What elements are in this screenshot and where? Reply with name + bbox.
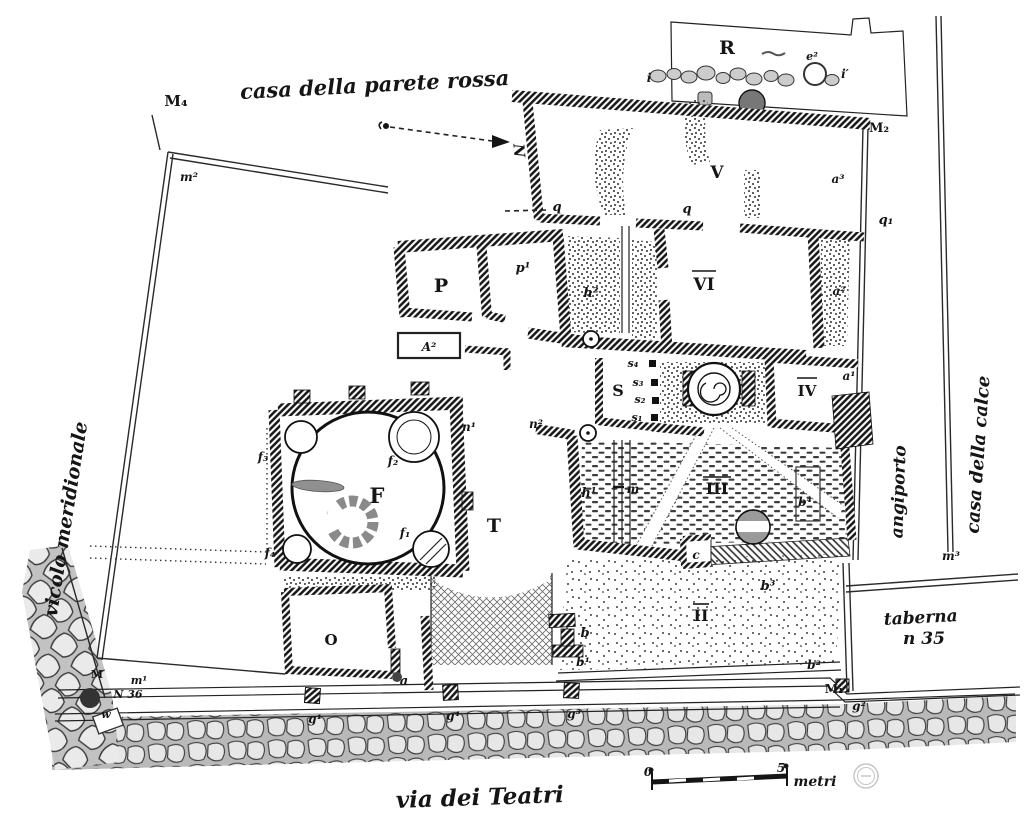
street-vicolo-meridionale: vicolo meridionale (40, 420, 93, 618)
marker-w: w (101, 708, 111, 721)
label-a2: a² (832, 284, 845, 298)
label-casa-della-calce: casa della calce (963, 375, 995, 534)
label-n1: n¹ (462, 420, 476, 434)
label-q-left: q (552, 200, 561, 215)
label-g3: g³ (567, 707, 581, 721)
label-b: b (580, 626, 589, 641)
marker-M2: M₂ (869, 121, 889, 136)
label-h2: h² (583, 286, 598, 301)
label-i: i (647, 71, 652, 85)
label-c: c (692, 548, 700, 562)
scale-zero: 0 (644, 765, 653, 779)
label-A2: A² (421, 340, 437, 354)
floor-plan-drawing: casa della parete rossa via dei Teatri v… (0, 0, 1024, 827)
marker-M4: M₄ (164, 92, 188, 110)
label-i1: i′ (841, 67, 850, 81)
label-m-small: m (627, 482, 640, 496)
label-b3: b³ (761, 579, 776, 594)
label-a: a (400, 674, 408, 689)
label-taberna-number: n 35 (903, 629, 945, 649)
room-label-P: P (434, 275, 448, 297)
label-f1: f₁ (399, 526, 410, 540)
label-h1: h¹ (581, 486, 596, 501)
marker-m3: m³ (942, 549, 960, 563)
room-label-T: T (487, 515, 501, 537)
room-label-II: II (694, 606, 709, 625)
room-label-R: R (719, 37, 735, 59)
north-arrow (379, 122, 510, 148)
label-n2: n² (529, 417, 543, 431)
room-label-VI: VI (692, 275, 714, 295)
room-label-III: III (706, 479, 728, 498)
title-casa-parete-rossa: casa della parete rossa (239, 65, 509, 104)
label-e2: e² (806, 50, 818, 63)
marker-M1: M₁ (825, 682, 844, 696)
label-f2: f₂ (387, 454, 398, 468)
label-g2: g² (852, 699, 866, 713)
east-boundaries (843, 16, 1018, 691)
label-b1: b¹ (576, 655, 590, 669)
floor-plan-page: casa della parete rossa via dei Teatri v… (0, 0, 1024, 827)
room-label-F: F (370, 483, 385, 508)
room-label-S: S (612, 381, 624, 400)
label-g4: g⁴ (446, 709, 460, 723)
street-pillars (304, 679, 849, 704)
label-a1: a¹ (842, 369, 855, 383)
room-label-V: V (709, 163, 724, 183)
label-s4: s₄ (627, 357, 638, 370)
label-s3: s₃ (632, 376, 643, 389)
label-q-mid: q (682, 202, 691, 217)
marker-m1: m¹ (131, 674, 147, 687)
marker-m2: m² (180, 170, 198, 184)
label-b4: b⁴ (798, 495, 812, 509)
street-via-dei-teatri: via dei Teatri (395, 781, 564, 814)
marker-M: M (91, 668, 103, 681)
library-stamp (854, 764, 878, 788)
scale-bar (649, 764, 789, 791)
label-q1: q₁ (879, 213, 894, 228)
marker-N36: N 36 (112, 688, 143, 701)
label-a3: a³ (831, 172, 844, 186)
scale-five: 5 (777, 761, 785, 775)
label-s2: s₂ (634, 393, 645, 406)
label-p1: p¹ (516, 261, 531, 276)
well-blob (80, 688, 100, 708)
scale-unit: metri (794, 774, 837, 790)
room-label-O: O (324, 631, 337, 649)
label-g1: g¹ (308, 712, 322, 726)
label-taberna: taberna (883, 606, 958, 630)
label-f4: f₄ (264, 546, 275, 560)
room-label-IV: IV (798, 382, 817, 400)
north-letter: N (509, 142, 528, 160)
street-angiporto: angiporto (887, 445, 910, 539)
label-f3: f₃ (257, 450, 268, 464)
label-s1: s₁ (631, 411, 642, 424)
label-b2: b² (807, 658, 821, 672)
